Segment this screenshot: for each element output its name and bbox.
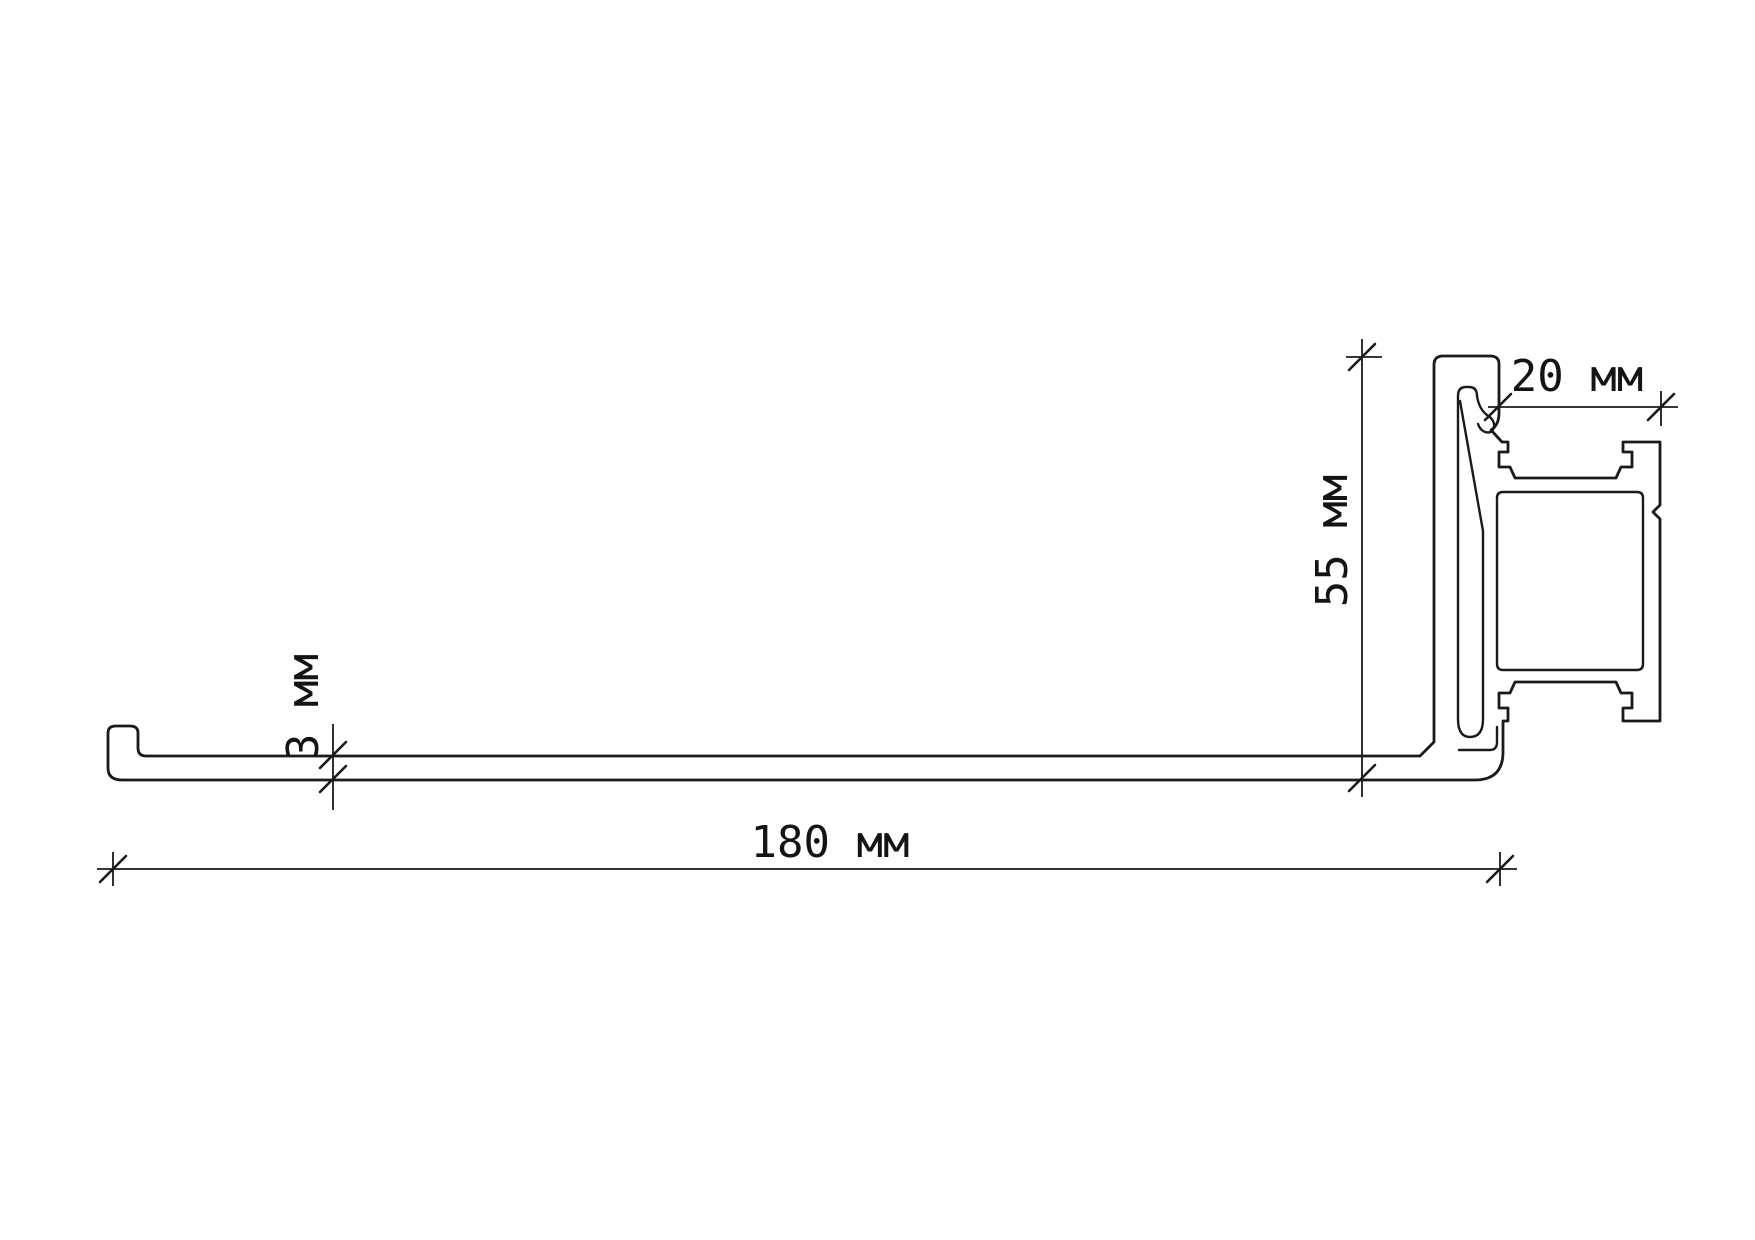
dimension-55: 55 мм [1307,339,1382,797]
drawing-canvas: 180 мм 55 мм 20 мм 3 мм [0,0,1755,1240]
dimension-3-label: 3 мм [278,654,329,760]
dimension-180-label: 180 мм [751,817,910,868]
dimension-20: 20 мм [1485,351,1678,426]
technical-drawing: 180 мм 55 мм 20 мм 3 мм [0,0,1755,1240]
dimension-180: 180 мм [97,817,1517,886]
dimension-20-label: 20 мм [1511,351,1643,402]
dimension-55-label: 55 мм [1307,475,1358,607]
profile-outline [108,356,1660,780]
dimension-3: 3 мм [278,654,346,810]
profile-cavity [1497,492,1643,670]
